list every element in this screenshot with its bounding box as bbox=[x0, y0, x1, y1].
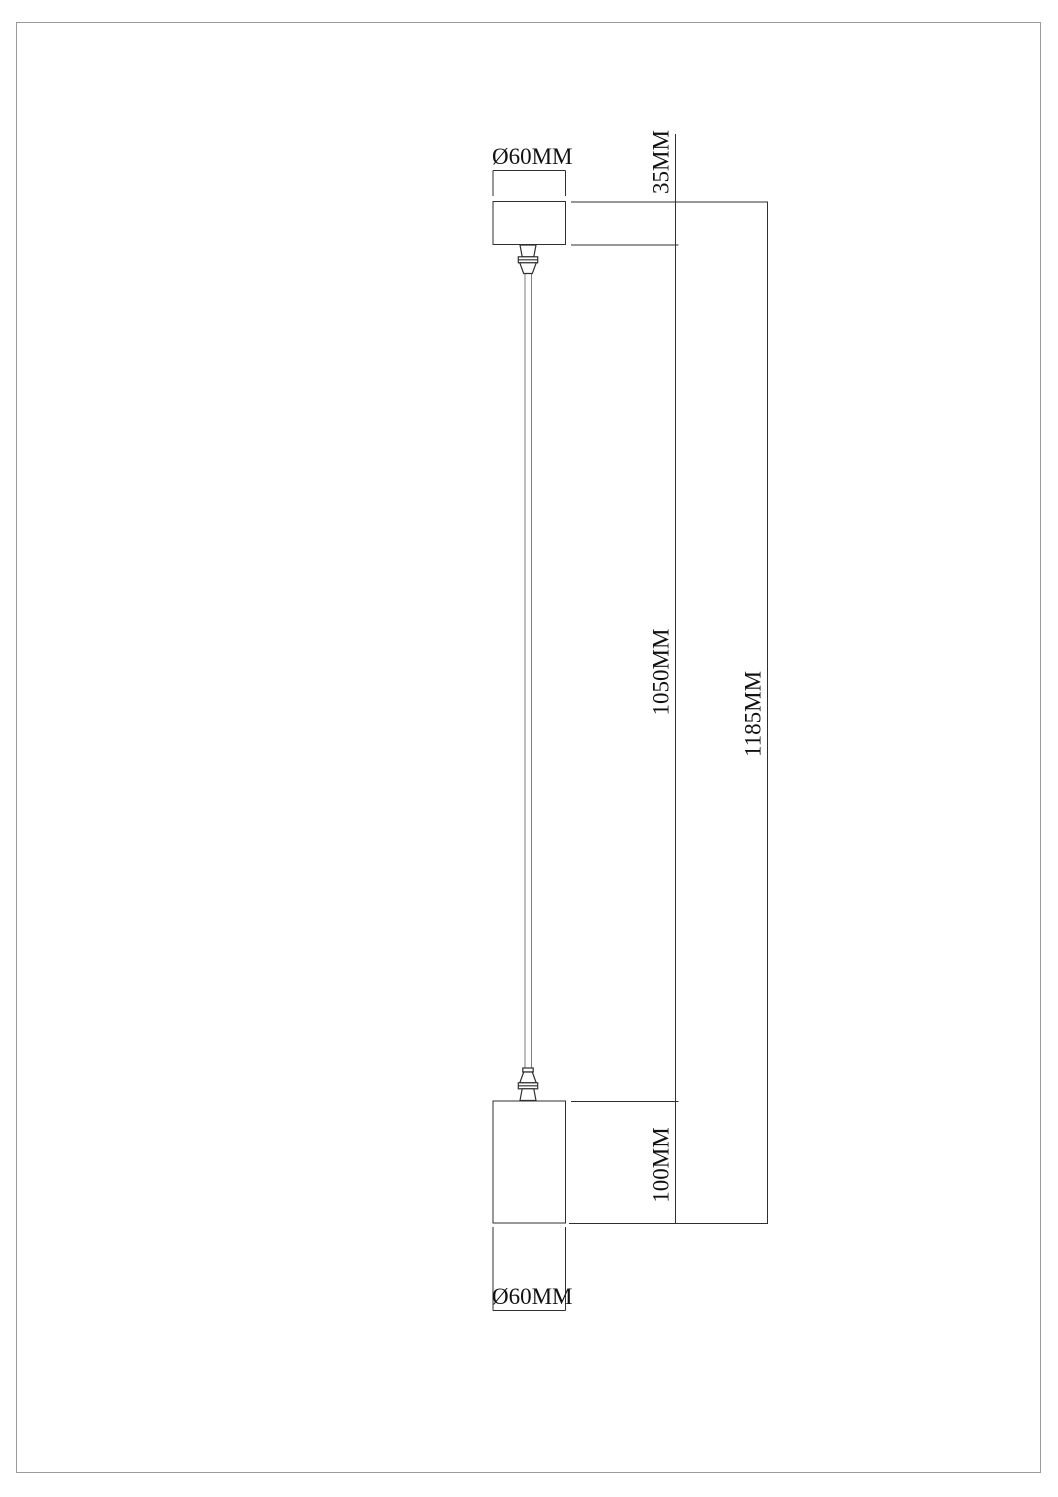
cable-length-label: 1050MM bbox=[650, 629, 673, 716]
canopy-gland-cone bbox=[520, 263, 536, 274]
lamp-strain-relief bbox=[518, 1068, 537, 1101]
canopy-strain-relief bbox=[518, 245, 537, 274]
canopy-height-label: 35MM bbox=[650, 130, 673, 194]
dimension-and-outline-lines bbox=[493, 134, 768, 1311]
lamp-gland-cone bbox=[520, 1072, 536, 1083]
lamp-gland-neck bbox=[520, 1089, 536, 1101]
canopy-outline bbox=[493, 202, 566, 245]
body-height-label: 100MM bbox=[650, 1127, 673, 1202]
canopy-diameter-label: Ø60MM bbox=[492, 145, 566, 168]
canopy-gland-neck bbox=[520, 245, 536, 257]
lamp-body-outline bbox=[493, 1101, 566, 1223]
total-height-label: 1185MM bbox=[742, 671, 765, 757]
pendant-lamp-technical-drawing bbox=[0, 0, 1058, 1497]
body-diameter-label: Ø60MM bbox=[492, 1285, 566, 1308]
page-canvas: Ø60MM Ø60MM 35MM 1050MM 100MM 1185MM bbox=[0, 0, 1058, 1497]
